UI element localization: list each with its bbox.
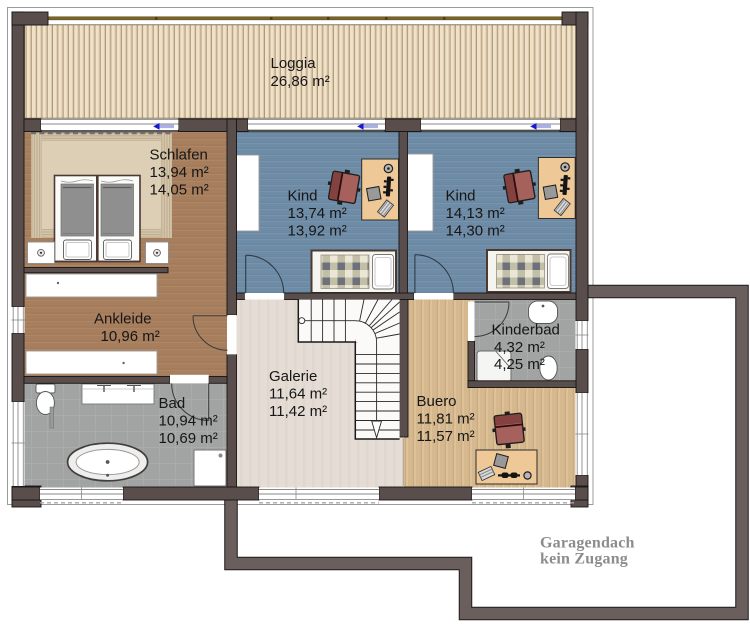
svg-text:Garagendach: Garagendach (540, 535, 635, 552)
svg-text:26,86 m²: 26,86 m² (271, 73, 330, 90)
svg-text:Bad: Bad (159, 395, 186, 412)
svg-text:Schlafen: Schlafen (150, 147, 208, 164)
svg-text:10,96 m²: 10,96 m² (101, 328, 160, 345)
svg-text:Loggia: Loggia (271, 55, 317, 72)
svg-text:Kinderbad: Kinderbad (492, 322, 560, 339)
svg-text:13,92 m²: 13,92 m² (288, 223, 347, 240)
svg-text:kein Zugang: kein Zugang (540, 551, 628, 568)
svg-text:10,69 m²: 10,69 m² (159, 430, 218, 447)
svg-text:4,32 m²: 4,32 m² (494, 339, 545, 356)
svg-text:10,94 m²: 10,94 m² (159, 413, 218, 430)
svg-text:Kind: Kind (446, 188, 476, 205)
svg-text:Ankleide: Ankleide (94, 311, 152, 328)
svg-text:Buero: Buero (417, 393, 457, 410)
svg-text:13,74 m²: 13,74 m² (288, 205, 347, 222)
svg-text:14,13 m²: 14,13 m² (446, 205, 505, 222)
svg-text:13,94 m²: 13,94 m² (150, 164, 209, 181)
svg-text:4,25 m²: 4,25 m² (494, 356, 545, 373)
svg-text:14,30 m²: 14,30 m² (446, 223, 505, 240)
svg-text:Kind: Kind (288, 188, 318, 205)
svg-text:11,57 m²: 11,57 m² (417, 428, 475, 445)
svg-text:11,64 m²: 11,64 m² (269, 386, 327, 403)
svg-text:11,42 m²: 11,42 m² (269, 403, 327, 420)
svg-text:Galerie: Galerie (269, 368, 317, 385)
svg-text:14,05 m²: 14,05 m² (150, 182, 209, 199)
svg-text:11,81 m²: 11,81 m² (417, 411, 475, 428)
